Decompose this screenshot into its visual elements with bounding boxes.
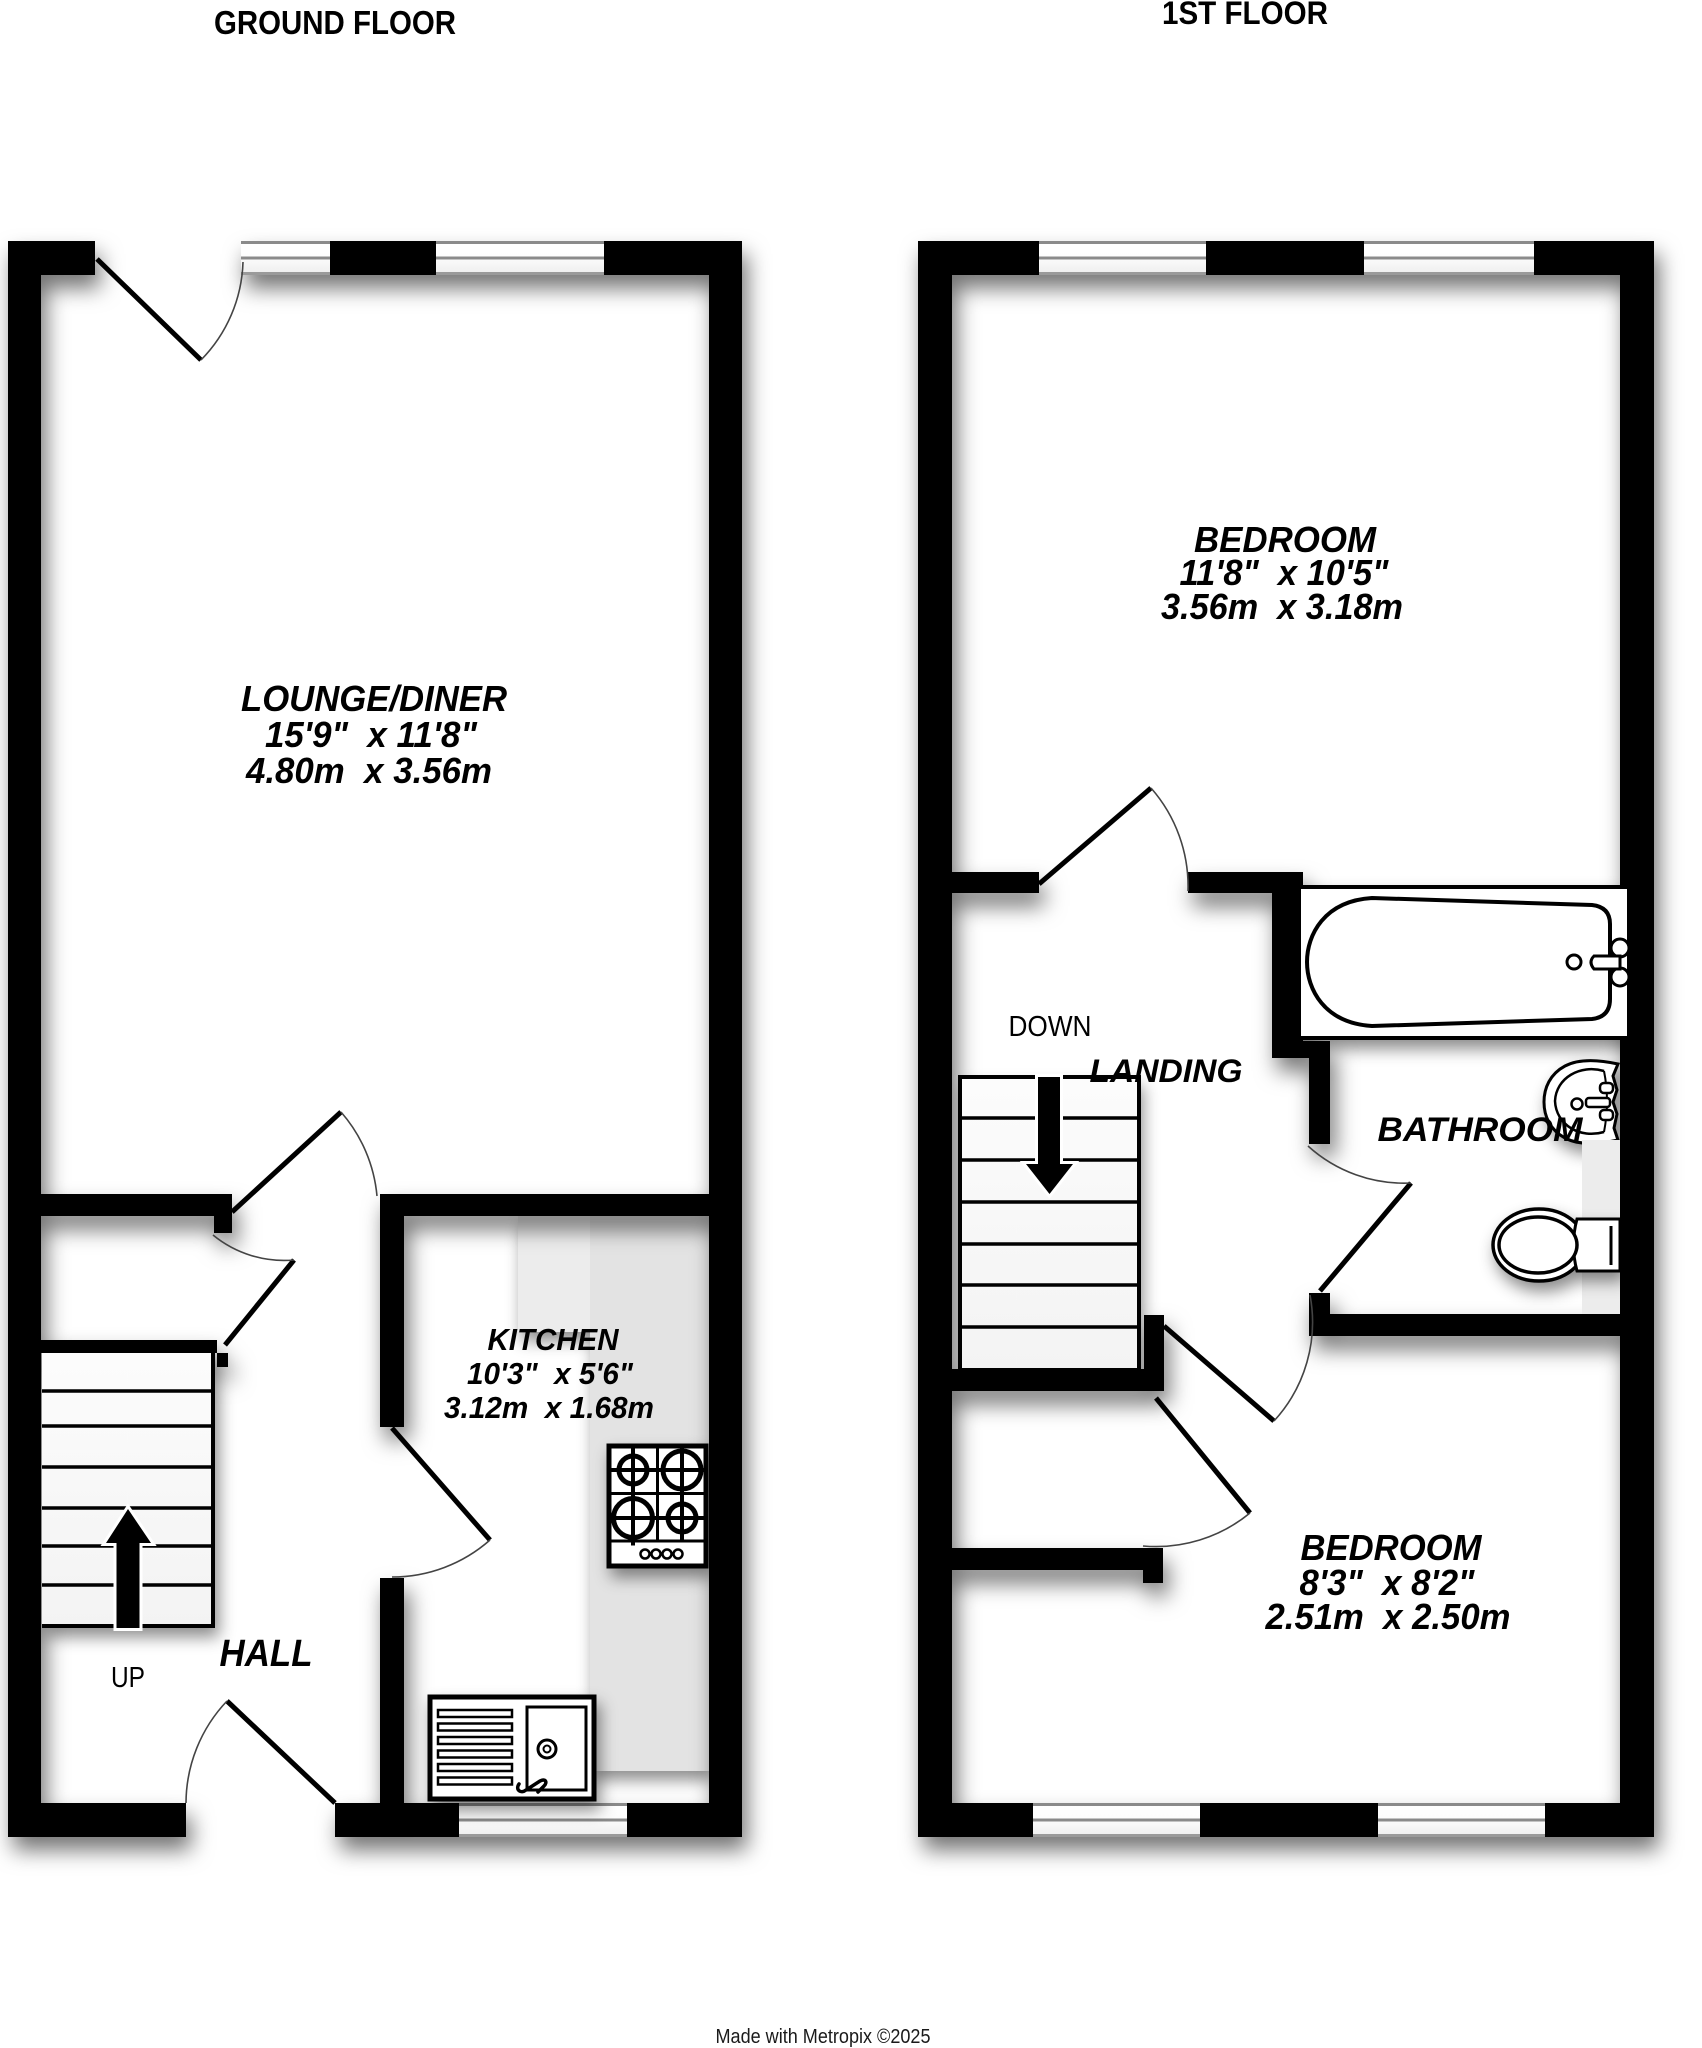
- svg-text:GROUND FLOOR: GROUND FLOOR: [214, 4, 456, 41]
- svg-text:15'9" x 11'8": 15'9" x 11'8": [265, 714, 478, 755]
- svg-text:KITCHEN: KITCHEN: [488, 1322, 620, 1357]
- svg-text:UP: UP: [111, 1662, 145, 1694]
- svg-text:1ST FLOOR: 1ST FLOOR: [1162, 0, 1328, 31]
- svg-text:4.80m x 3.56m: 4.80m x 3.56m: [245, 750, 492, 791]
- svg-text:BATHROOM: BATHROOM: [1378, 1111, 1584, 1149]
- svg-text:2.51m x 2.50m: 2.51m x 2.50m: [1265, 1596, 1511, 1637]
- svg-text:Made with Metropix ©2025: Made with Metropix ©2025: [716, 2026, 931, 2048]
- svg-text:3.12m x 1.68m: 3.12m x 1.68m: [444, 1390, 654, 1425]
- svg-text:DOWN: DOWN: [1009, 1011, 1092, 1043]
- svg-text:LANDING: LANDING: [1090, 1053, 1243, 1089]
- svg-text:10'3" x 5'6": 10'3" x 5'6": [467, 1356, 634, 1391]
- svg-text:LOUNGE/DINER: LOUNGE/DINER: [241, 678, 507, 719]
- svg-text:HALL: HALL: [220, 1633, 313, 1675]
- svg-text:3.56m x 3.18m: 3.56m x 3.18m: [1161, 586, 1403, 627]
